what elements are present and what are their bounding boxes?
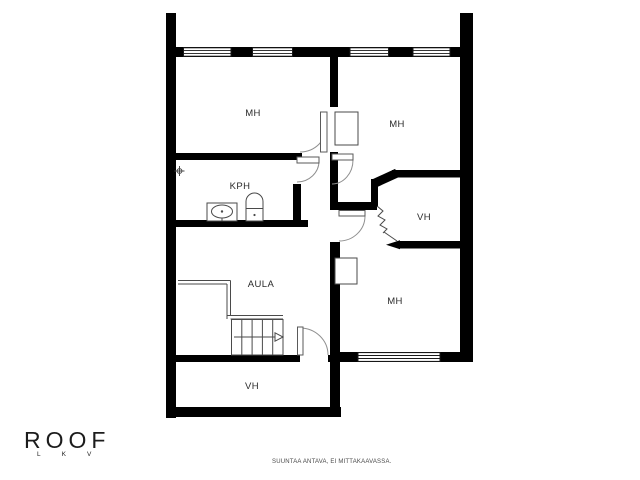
room-label-bathroom: KPH [230,181,251,192]
door-bedroom-top-left [300,112,327,152]
room-label-bedroom-top-left: MH [245,108,261,119]
inner-walls [174,57,461,417]
door-closet-bottom-left [298,327,329,355]
window-top-4 [413,48,450,56]
wall-vh-right-bottom [399,241,461,249]
window-top-2 [253,48,293,56]
room-label-closet-right: VH [417,212,431,223]
wall-right-outer [460,13,473,362]
roof-lkv-logo-subtext: LKV [37,452,112,459]
wall-aula-bottom-left [174,355,300,362]
door-bedroom-bottom-right [339,211,365,242]
staircase [178,281,283,356]
window-top-1 [184,48,232,56]
wall-vh-right-top [392,170,461,178]
wall-vh-angled [373,173,397,184]
zigzag-slope-mark [377,206,397,241]
sink [207,203,237,221]
window-top-3 [350,48,389,56]
door-bathroom [297,157,319,182]
roof-lkv-logo: ROOF [24,429,110,452]
toilet [246,193,263,221]
window-bottom [358,353,440,362]
room-label-hall: AULA [248,279,275,290]
room-label-bedroom-bottom-right: MH [387,296,403,307]
floor-plan-screenshot: MH KPH AULA VH MH VH MH ROOF LKV SUUNTAA… [0,0,640,480]
wall-kph-top [174,153,302,160]
wall-central-top [330,57,338,107]
room-label-closet-bottom-left: VH [245,381,259,392]
room-label-bedroom-top-right: MH [389,119,405,130]
wall-bottom-vh-left [166,407,341,417]
wall-arrow-taper [386,240,400,249]
wall-aula-bottom-right [328,355,341,362]
closets [335,112,358,284]
bathroom-fixtures [175,166,264,221]
wardrobe-bottom-right [335,258,357,284]
wardrobe-top-right [335,112,358,145]
wall-central-mid [330,152,338,210]
wall-kph-bottom [174,220,308,227]
disclaimer-text: SUUNTAA ANTAVA, EI MITTAKAAVASSA. [272,459,392,465]
floor-plan-drawing: MH KPH AULA VH MH VH MH [0,0,640,480]
